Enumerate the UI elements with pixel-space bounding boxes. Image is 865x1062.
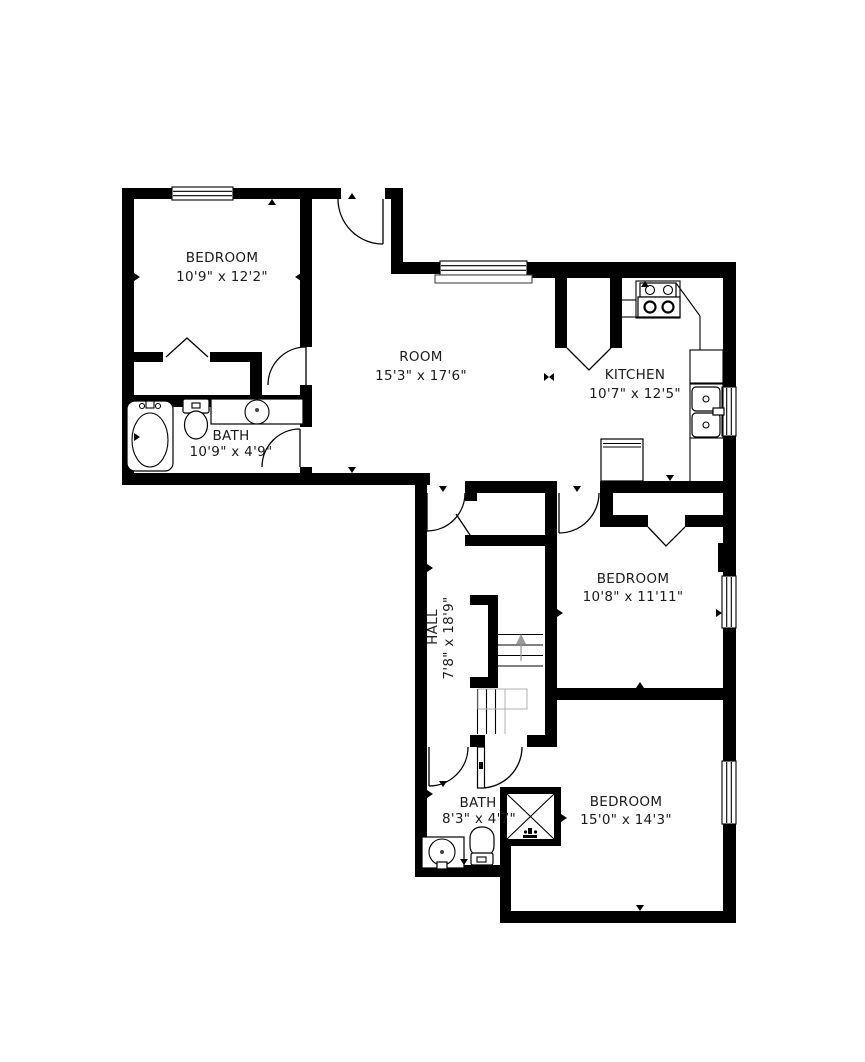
bathtub-icon [127,400,173,471]
room-name: ROOM [399,349,442,365]
entry-door-icon [338,199,383,244]
room-name: BEDROOM [590,794,663,810]
window-bedroom3-icon [722,761,736,824]
toilet-bath2-icon [470,827,494,865]
room-dims: 10'9" x 12'2" [176,269,268,285]
room-name: KITCHEN [605,367,666,383]
bedroom1-door-icon [268,347,306,385]
room-name: BEDROOM [186,250,259,266]
bedroom3-door-icon [478,747,523,788]
window-room-icon [435,261,532,283]
room-dims: 10'9" x 4'9" [190,444,273,460]
room-dims: 8'3" x 4'7" [442,811,516,827]
bedroom1-closet-door-icon [166,338,208,357]
label-bedroom-top-left: BEDROOM 10'9" x 12'2" [176,250,268,285]
room-labels: BEDROOM 10'9" x 12'2" ROOM 15'3" x 17'6"… [176,250,683,828]
kitchen-sink-icon [690,384,724,438]
vanity-sink-bath1-icon [211,399,303,424]
room-name: BATH [212,428,249,444]
vanity-sink-bath2-icon [422,837,464,869]
refrigerator-icon [601,439,643,481]
label-bedroom-bottom: BEDROOM 15'0" x 14'3" [580,794,672,828]
window-bedroom1-icon [172,187,233,200]
label-bedroom-middle: BEDROOM 10'8" x 11'11" [583,571,684,605]
hall-closet-door-icon [456,514,470,535]
room-dims: 10'8" x 11'11" [583,589,684,605]
bath2-door-icon [429,747,468,786]
hall-door-icon [427,493,465,531]
bedroom2-door-icon [559,493,599,533]
window-bedroom2-icon [722,576,736,628]
floor-plan: BEDROOM 10'9" x 12'2" ROOM 15'3" x 17'6"… [0,0,865,1062]
bedroom2-closet-door-icon [648,527,685,546]
floor-plan-page: BEDROOM 10'9" x 12'2" ROOM 15'3" x 17'6"… [0,0,865,1062]
label-kitchen: KITCHEN 10'7" x 12'5" [589,367,681,402]
toilet-bath1-icon [183,399,209,439]
room-name: BEDROOM [597,571,670,587]
room-dims: 15'3" x 17'6" [375,368,467,384]
label-room-center: ROOM 15'3" x 17'6" [375,349,467,384]
room-dims: 10'7" x 12'5" [589,386,681,402]
label-hall: HALL 7'8" x 18'9" [425,597,457,680]
room-dims: 15'0" x 14'3" [580,812,672,828]
room-dims: 7'8" x 18'9" [441,597,457,680]
room-name: BATH [459,795,496,811]
room-name: HALL [425,609,441,645]
